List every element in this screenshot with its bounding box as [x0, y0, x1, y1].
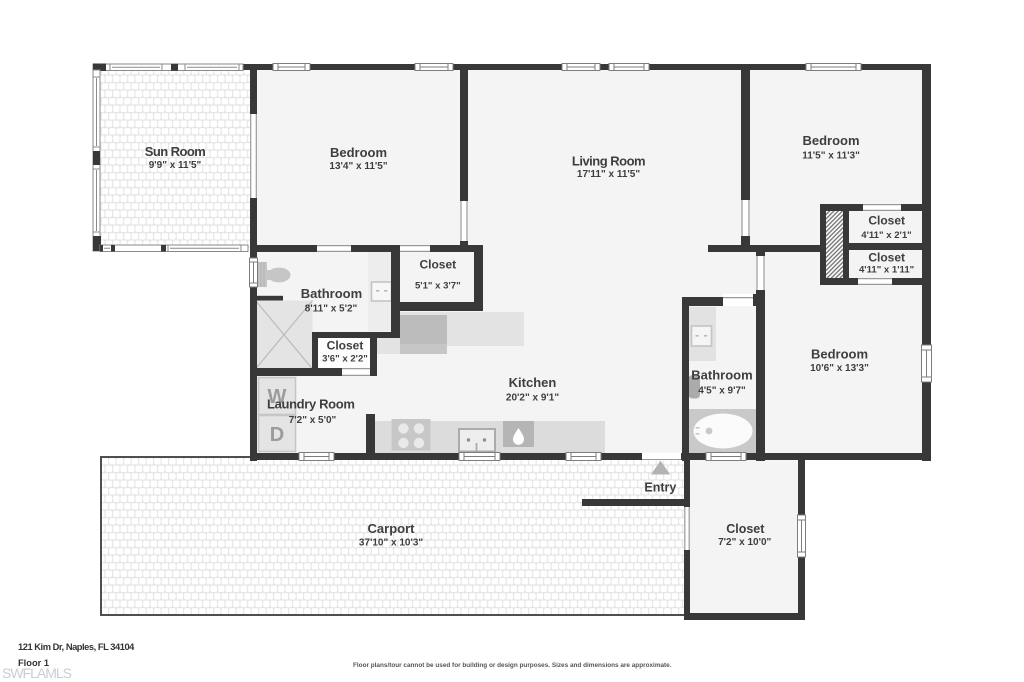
- svg-text:4'11" x 2'1": 4'11" x 2'1": [861, 230, 911, 241]
- svg-text:17'11" x 11'5": 17'11" x 11'5": [577, 169, 640, 180]
- svg-text:9'9" x 11'5": 9'9" x 11'5": [149, 160, 202, 171]
- svg-text:Closet: Closet: [726, 522, 765, 536]
- svg-text:Bathroom: Bathroom: [691, 368, 752, 383]
- svg-text:Bedroom: Bedroom: [330, 145, 387, 160]
- svg-text:11'5" x 11'3": 11'5" x 11'3": [802, 151, 860, 162]
- svg-text:5'1" x 3'7": 5'1" x 3'7": [415, 281, 461, 292]
- svg-text:4'11" x 1'11": 4'11" x 1'11": [859, 265, 914, 276]
- svg-text:7'2" x 10'0": 7'2" x 10'0": [718, 537, 771, 548]
- svg-text:7'2" x 5'0": 7'2" x 5'0": [289, 415, 337, 426]
- svg-text:Living Room: Living Room: [572, 154, 645, 169]
- svg-text:4'5" x 9'7": 4'5" x 9'7": [698, 386, 746, 397]
- svg-text:8'11" x 5'2": 8'11" x 5'2": [305, 304, 358, 315]
- svg-text:37'10" x 10'3": 37'10" x 10'3": [359, 538, 424, 549]
- svg-text:3'6" x 2'2": 3'6" x 2'2": [322, 354, 368, 365]
- svg-text:Closet: Closet: [868, 251, 905, 265]
- svg-text:Laundry Room: Laundry Room: [267, 397, 355, 412]
- svg-text:Closet: Closet: [327, 339, 364, 353]
- svg-text:D: D: [270, 424, 284, 446]
- svg-text:Carport: Carport: [368, 521, 416, 536]
- svg-text:Floor plans/tour cannot be use: Floor plans/tour cannot be used for buil…: [353, 662, 672, 669]
- svg-text:121 Kim Dr, Naples, FL 34104: 121 Kim Dr, Naples, FL 34104: [18, 642, 135, 652]
- svg-text:Bedroom: Bedroom: [811, 347, 868, 362]
- svg-text:Kitchen: Kitchen: [509, 375, 557, 390]
- svg-text:10'6" x 13'3": 10'6" x 13'3": [810, 363, 869, 374]
- svg-text:SWFLAMLS: SWFLAMLS: [2, 665, 72, 681]
- svg-text:20'2" x 9'1": 20'2" x 9'1": [506, 393, 559, 404]
- svg-text:13'4" x 11'5": 13'4" x 11'5": [329, 161, 387, 172]
- svg-text:Sun Room: Sun Room: [145, 144, 206, 159]
- svg-text:Entry: Entry: [644, 481, 676, 495]
- svg-text:Bathroom: Bathroom: [301, 286, 362, 301]
- svg-text:Closet: Closet: [868, 214, 905, 228]
- svg-text:Bedroom: Bedroom: [802, 133, 859, 148]
- svg-text:Closet: Closet: [419, 258, 456, 272]
